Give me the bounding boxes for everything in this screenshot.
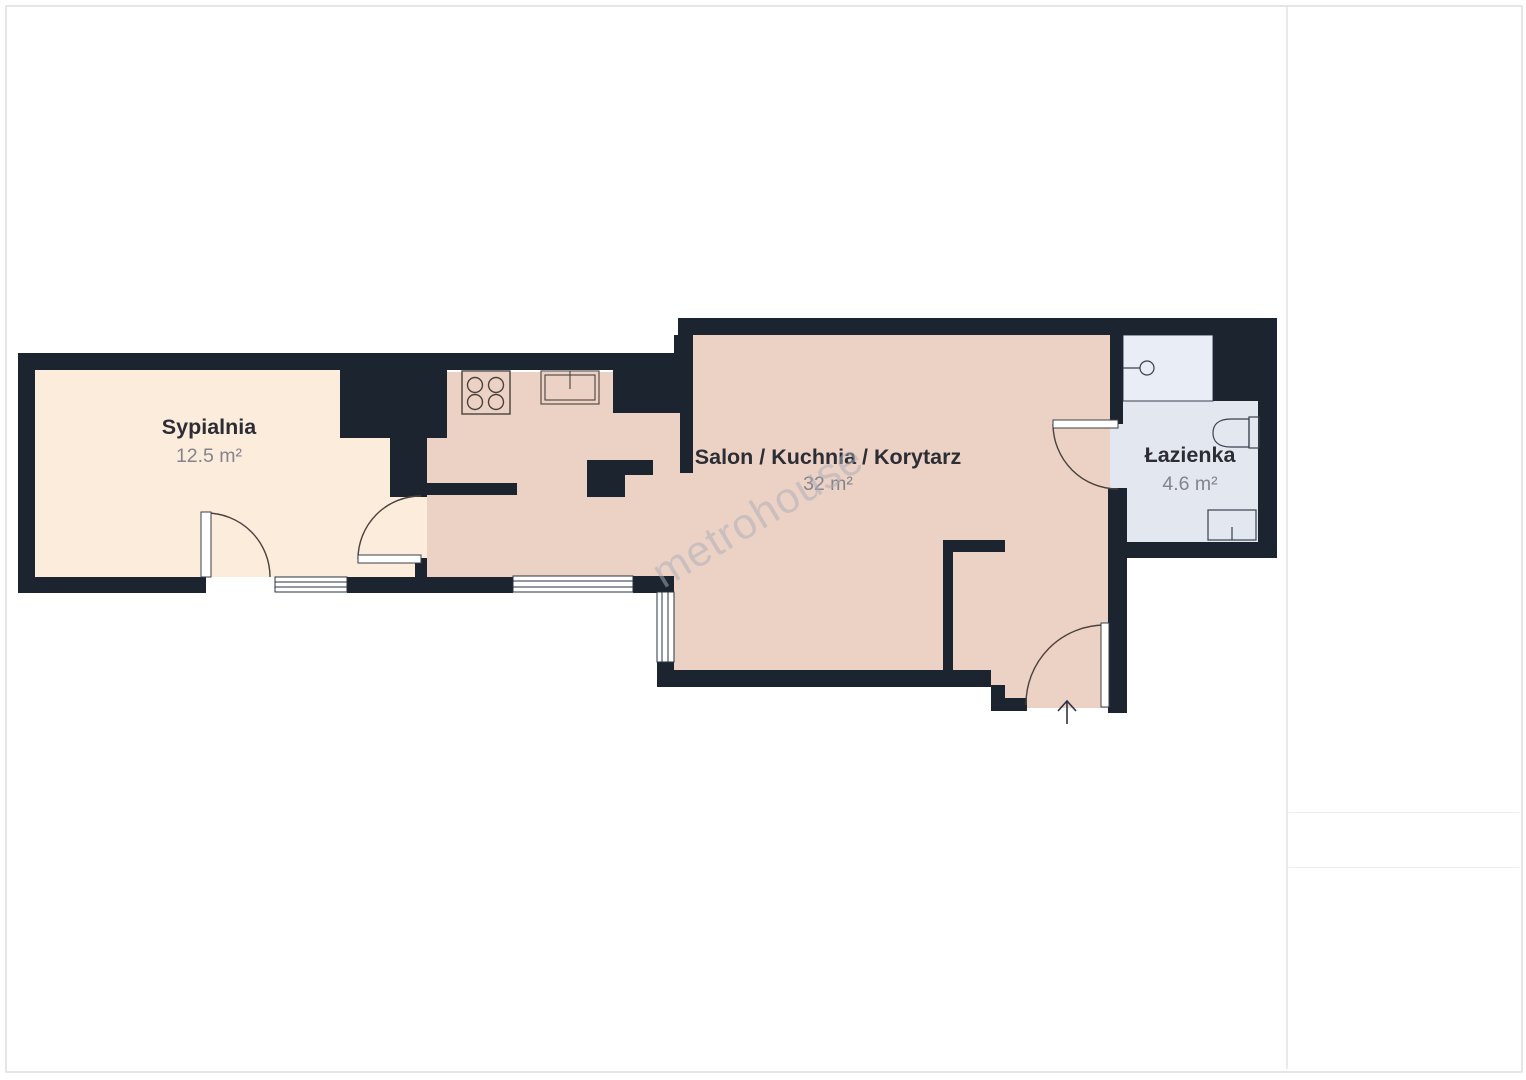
sidebar-divider-bottom: [1289, 867, 1519, 868]
bedroom-area: 12.5 m²: [176, 445, 243, 467]
living-room-window: [513, 576, 633, 592]
bedroom-floor: [35, 370, 340, 577]
corner-window: [657, 592, 674, 662]
bathroom-floor: [1110, 401, 1258, 542]
sidebar-vertical-divider: [1286, 7, 1288, 1069]
sidebar-divider-top: [1289, 812, 1519, 813]
bedroom-label: Sypialnia: [162, 415, 257, 439]
bedroom-window: [275, 577, 347, 592]
bathroom-door-leaf: [1053, 420, 1118, 428]
entrance-door-leaf: [1101, 623, 1109, 707]
bathroom-label: Łazienka: [1145, 443, 1237, 467]
floor-plan-page: Sypialnia 12.5 m² Salon / Kuchnia / Kory…: [0, 0, 1526, 1080]
balcony-door-leaf: [201, 512, 211, 577]
floor-plan-drawing: Sypialnia 12.5 m² Salon / Kuchnia / Kory…: [0, 0, 1287, 1080]
info-sidebar: Przybliżona całkowita powierzchnia(1) 49…: [1287, 0, 1526, 1080]
bathroom-area: 4.6 m²: [1162, 473, 1218, 495]
bedroom-door-leaf: [358, 555, 421, 563]
